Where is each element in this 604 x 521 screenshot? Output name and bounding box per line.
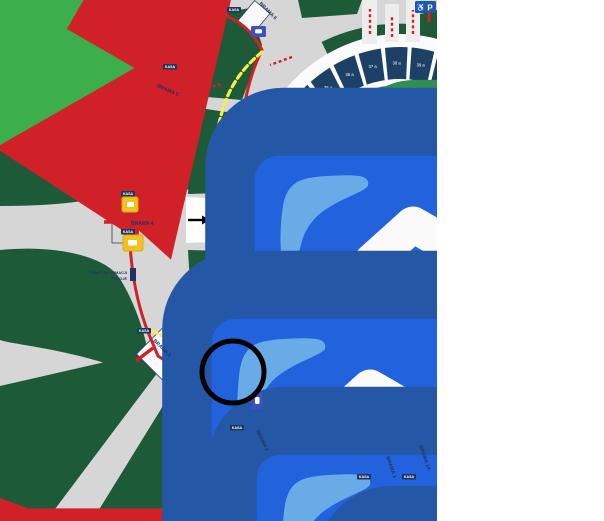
info-point-label: POKOJE: [111, 277, 127, 281]
accessible-parking-chip: ♿ P: [415, 1, 436, 13]
kasa-label: KASA: [359, 475, 370, 479]
stadium-section-label: 36 a: [346, 72, 355, 77]
stadium-section-label: 38 a: [393, 61, 402, 66]
gate-label-brama-4: BRAMA 4: [131, 221, 154, 227]
stadium-section-label: 39 a: [417, 62, 426, 67]
kasa-label: KASA: [165, 65, 176, 69]
kasa-label: KASA: [123, 230, 134, 234]
info-point-marker: [130, 268, 136, 281]
site-map-page: ♿: [0, 0, 604, 521]
legend-panel: Obszar dostępny dlawystawcy Obszar dostę…: [437, 0, 604, 521]
wheelchair-glyph: ♿: [416, 3, 425, 12]
trash-container-icon: [251, 26, 266, 37]
kasa-label: KASA: [404, 475, 415, 479]
kasa-label: KASA: [123, 192, 134, 196]
info-point-label: PUNKT INFORMACJI: [89, 271, 127, 275]
ticket-office-icon: [122, 197, 138, 212]
kasa-label: KASA: [232, 426, 243, 430]
parking-symbol: P: [427, 4, 433, 13]
ticket-office-icon: [123, 235, 143, 251]
kasa-label: KASA: [139, 329, 150, 333]
stadium-section-label: 37 a: [369, 64, 378, 69]
kasa-label: KASA: [229, 8, 240, 12]
